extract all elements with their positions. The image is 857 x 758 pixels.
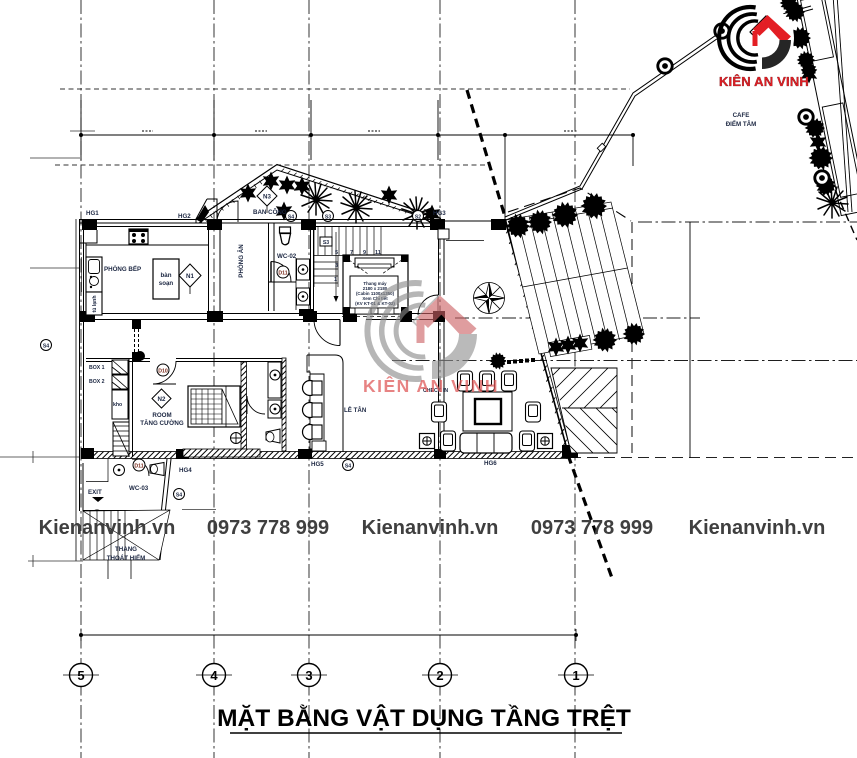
svg-text:BAN CÔNG: BAN CÔNG xyxy=(253,208,287,216)
svg-text:2: 2 xyxy=(436,668,443,683)
svg-text:TĂNG CƯỜNG: TĂNG CƯỜNG xyxy=(140,419,184,427)
svg-text:ROOM: ROOM xyxy=(152,412,171,419)
svg-text:THOÁT HIỂM: THOÁT HIỂM xyxy=(107,555,146,562)
svg-text:N3: N3 xyxy=(263,194,271,201)
svg-text:WC-02: WC-02 xyxy=(277,253,297,260)
svg-text:S4: S4 xyxy=(176,493,182,499)
svg-text:D11: D11 xyxy=(134,464,143,470)
svg-text:EXIT: EXIT xyxy=(88,489,102,496)
svg-text:PHÒNG ĂN: PHÒNG ĂN xyxy=(237,244,245,278)
svg-text:CAFE: CAFE xyxy=(733,112,750,119)
svg-text:Kienanvinh.vn: Kienanvinh.vn xyxy=(39,517,176,539)
svg-text:HG5: HG5 xyxy=(311,461,324,468)
svg-text:1: 1 xyxy=(334,277,337,283)
svg-text:5: 5 xyxy=(77,668,84,683)
svg-text:WC-03: WC-03 xyxy=(129,485,149,492)
svg-text:ĐIỂM TÂM: ĐIỂM TÂM xyxy=(726,121,757,128)
svg-text:KIÊN AN VINH: KIÊN AN VINH xyxy=(719,74,809,89)
svg-text:PHÒNG BẾP: PHÒNG BẾP xyxy=(104,265,141,273)
svg-text:HG2: HG2 xyxy=(178,213,191,220)
svg-text:KIÊN AN VINH: KIÊN AN VINH xyxy=(363,375,499,396)
svg-text:HG3: HG3 xyxy=(433,210,446,217)
svg-text:tủ lạnh: tủ lạnh xyxy=(92,295,98,312)
svg-text:HG6: HG6 xyxy=(484,460,497,467)
svg-text:N1: N1 xyxy=(186,273,194,280)
svg-text:BOX 1: BOX 1 xyxy=(89,365,105,371)
svg-text:0973 778 999: 0973 778 999 xyxy=(531,517,653,539)
svg-text:soạn: soạn xyxy=(159,280,174,287)
svg-text:S4: S4 xyxy=(345,464,351,470)
svg-text:3: 3 xyxy=(335,263,338,269)
svg-text:Kienanvinh.vn: Kienanvinh.vn xyxy=(362,517,499,539)
svg-text:4: 4 xyxy=(210,668,218,683)
svg-text:BOX 2: BOX 2 xyxy=(89,379,105,385)
svg-text:Kienanvinh.vn: Kienanvinh.vn xyxy=(689,517,826,539)
svg-text:S3: S3 xyxy=(323,240,329,246)
svg-text:0973 778 999: 0973 778 999 xyxy=(207,517,329,539)
svg-text:HG4: HG4 xyxy=(179,467,192,474)
svg-text:HG1: HG1 xyxy=(86,210,99,217)
svg-text:3: 3 xyxy=(305,668,312,683)
svg-text:D11: D11 xyxy=(278,271,287,277)
svg-text:MẶT BẰNG VẬT DỤNG TẦNG TRỆT: MẶT BẰNG VẬT DỤNG TẦNG TRỆT xyxy=(217,704,631,732)
svg-text:THANG: THANG xyxy=(115,546,137,553)
svg-text:kho: kho xyxy=(113,402,122,408)
svg-text:5: 5 xyxy=(335,250,338,256)
svg-text:S4: S4 xyxy=(43,344,49,350)
svg-text:LỄ TÂN: LỄ TÂN xyxy=(344,407,367,414)
svg-text:D10: D10 xyxy=(158,369,168,375)
svg-text:bàn: bàn xyxy=(160,272,171,279)
svg-text:1: 1 xyxy=(572,668,579,683)
svg-text:N2: N2 xyxy=(158,396,166,403)
